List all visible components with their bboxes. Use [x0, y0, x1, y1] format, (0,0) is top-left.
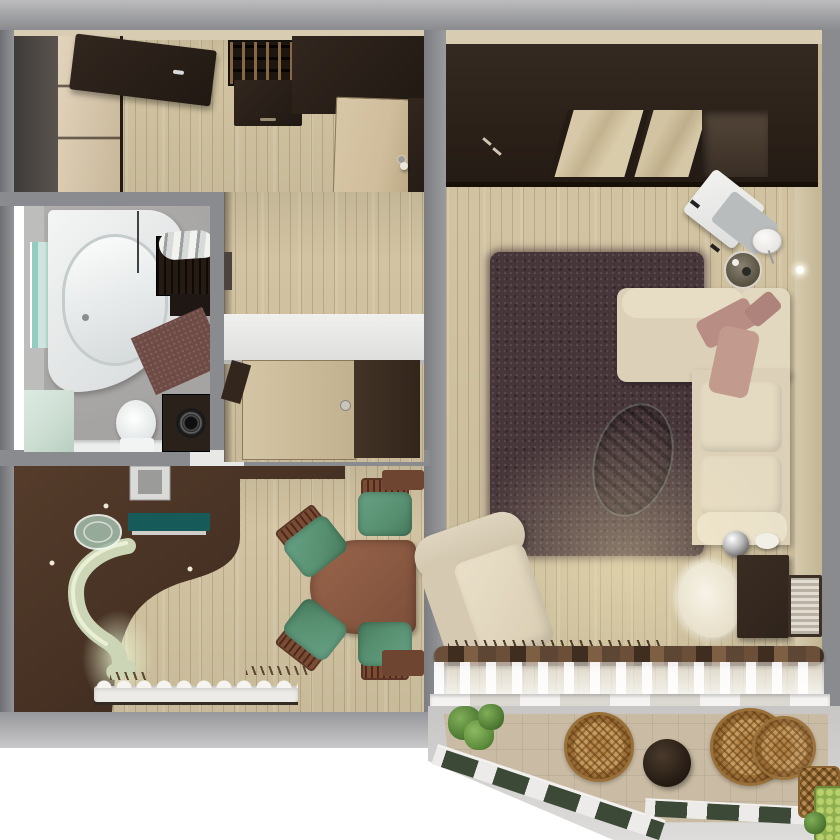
apartment-floor-plan — [0, 0, 840, 840]
bathtub-faucet — [82, 314, 89, 321]
wardrobe-handle — [492, 147, 502, 156]
wall-cabinet — [382, 650, 424, 676]
wardrobe-niche — [702, 110, 768, 177]
washer-drum — [176, 408, 206, 438]
sheer-curtain-scallops — [94, 678, 298, 688]
towels — [158, 229, 210, 261]
knob — [50, 561, 55, 566]
outer-wall-right — [822, 30, 840, 712]
teal-countertop — [128, 513, 210, 531]
sofa-seat-cushion — [700, 456, 782, 516]
side-table — [724, 251, 762, 289]
desk-chair-leg — [710, 243, 720, 252]
knob — [188, 567, 193, 572]
living-wall-trim — [446, 30, 822, 44]
sheer-curtain — [434, 662, 824, 696]
towel-basket — [156, 236, 210, 296]
vent-inner — [138, 470, 162, 494]
window-rail — [94, 702, 298, 705]
balcony-plant — [804, 812, 826, 834]
kitchen-dark-floor — [14, 466, 345, 712]
entrance-door-handle — [173, 70, 184, 75]
wall-light — [796, 266, 804, 274]
shower-screen — [137, 211, 139, 273]
mirror-door — [548, 110, 649, 177]
wall-bathroom-corridor — [210, 192, 224, 466]
tv-stand — [737, 555, 789, 638]
corridor — [224, 192, 424, 462]
toilet-tank — [120, 438, 154, 452]
knob — [104, 504, 109, 509]
bathroom — [24, 206, 210, 452]
glass-bar-table — [75, 515, 121, 549]
counter-edge — [132, 531, 206, 535]
radiator — [246, 666, 308, 675]
wall-cabinet — [382, 470, 424, 490]
hallway-shadow-corner — [14, 36, 60, 192]
white-vase — [755, 533, 779, 549]
hallway — [14, 30, 424, 192]
outer-wall-top — [0, 0, 840, 30]
wardrobe-handle — [482, 137, 492, 146]
tv-frame — [788, 575, 822, 637]
side-table-item — [732, 259, 739, 266]
sink-counter — [24, 390, 74, 452]
white-partition — [224, 314, 424, 364]
wall-hall-bathroom — [0, 192, 224, 206]
chrome-sphere — [723, 531, 749, 557]
chair-seat — [358, 492, 412, 536]
wicker-chair — [564, 712, 634, 782]
kitchen-door-dark — [354, 360, 420, 458]
wall-kitchen-bottom — [0, 712, 446, 748]
balcony-plant — [478, 704, 504, 730]
side-table-item — [742, 267, 751, 276]
living-wardrobe — [446, 44, 818, 187]
balcony-table — [643, 739, 691, 787]
door-handle — [340, 400, 351, 411]
kitchen — [14, 466, 424, 712]
window-sill — [94, 686, 298, 702]
kitchen-door-light — [242, 360, 356, 460]
bench-handle — [260, 118, 276, 121]
outer-wall-left — [0, 30, 14, 748]
hall-vase — [400, 162, 408, 170]
door-stop — [224, 252, 232, 290]
washing-machine — [162, 394, 210, 452]
